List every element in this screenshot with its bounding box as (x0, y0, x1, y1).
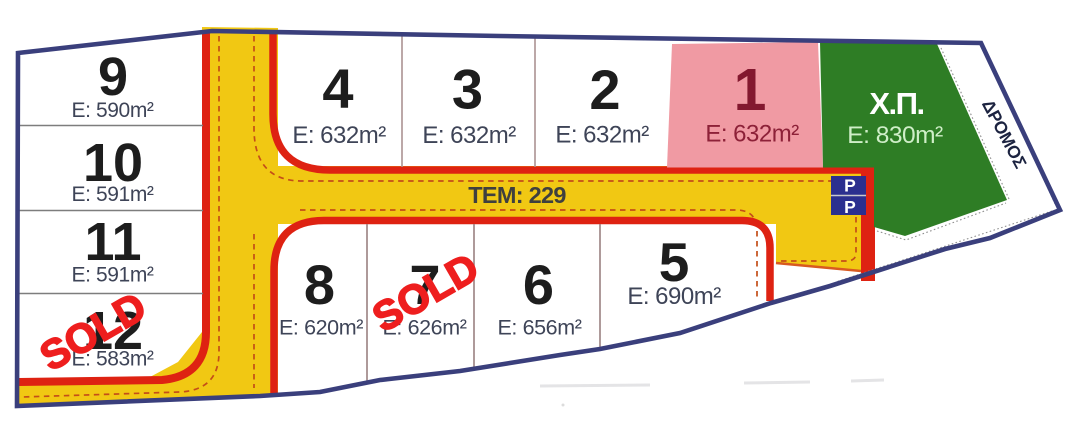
svg-text:E: 656m²: E: 656m² (497, 316, 581, 340)
svg-text:P: P (844, 197, 856, 217)
svg-text:2: 2 (589, 58, 620, 121)
svg-text:E: 830m²: E: 830m² (847, 122, 943, 149)
svg-text:8: 8 (304, 253, 335, 316)
svg-text:1: 1 (734, 57, 767, 123)
svg-text:E: 591m²: E: 591m² (72, 183, 154, 206)
svg-text:3: 3 (452, 58, 483, 121)
svg-text:6: 6 (523, 253, 554, 316)
svg-text:9: 9 (98, 47, 128, 107)
svg-text:E: 632m²: E: 632m² (422, 122, 516, 149)
svg-text:E: 620m²: E: 620m² (279, 316, 363, 340)
svg-text:E: 632m²: E: 632m² (555, 122, 649, 149)
svg-text:E: 632m²: E: 632m² (292, 122, 386, 149)
svg-text:P: P (844, 176, 856, 196)
svg-text:E: 690m²: E: 690m² (627, 283, 721, 310)
svg-text:E: 590m²: E: 590m² (72, 99, 154, 122)
svg-text:Χ.Π.: Χ.Π. (869, 86, 923, 121)
svg-text:4: 4 (322, 57, 353, 120)
svg-text:E: 632m²: E: 632m² (705, 121, 799, 148)
svg-text:ΤΕΜ: 229: ΤΕΜ: 229 (468, 182, 566, 208)
svg-text:E: 591m²: E: 591m² (72, 264, 154, 287)
